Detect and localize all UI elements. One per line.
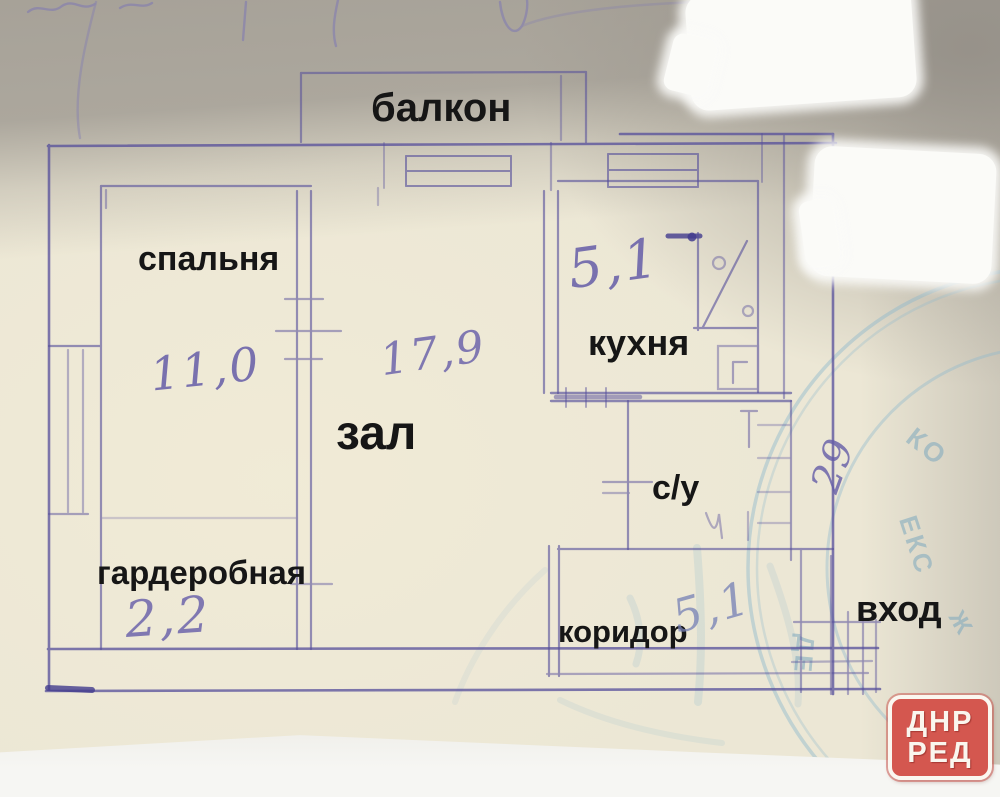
room-label-entrance: вход — [856, 588, 942, 630]
area-value-wardrobe: 2,2 — [123, 585, 212, 649]
area-value-bedroom: 11,0 — [147, 336, 262, 401]
room-label-balcony: балкон — [371, 86, 511, 131]
whiteout-blob-top — [684, 0, 918, 112]
floor-plan-photo: КО ЕКС ДЕ Ж — [0, 0, 1000, 797]
watermark-logo: ДНР РЕД — [888, 695, 992, 780]
watermark-line1: ДНР — [907, 707, 974, 738]
room-label-corridor: коридор — [558, 614, 688, 650]
room-label-bathroom: с/у — [652, 469, 699, 508]
watermark-line2: РЕД — [907, 738, 972, 769]
room-label-bedroom: спальня — [138, 240, 279, 279]
area-value-kitchen: 5,1 — [564, 226, 664, 301]
whiteout-blob-right — [809, 145, 998, 284]
room-label-hall: зал — [336, 406, 416, 461]
room-label-kitchen: кухня — [588, 322, 689, 364]
